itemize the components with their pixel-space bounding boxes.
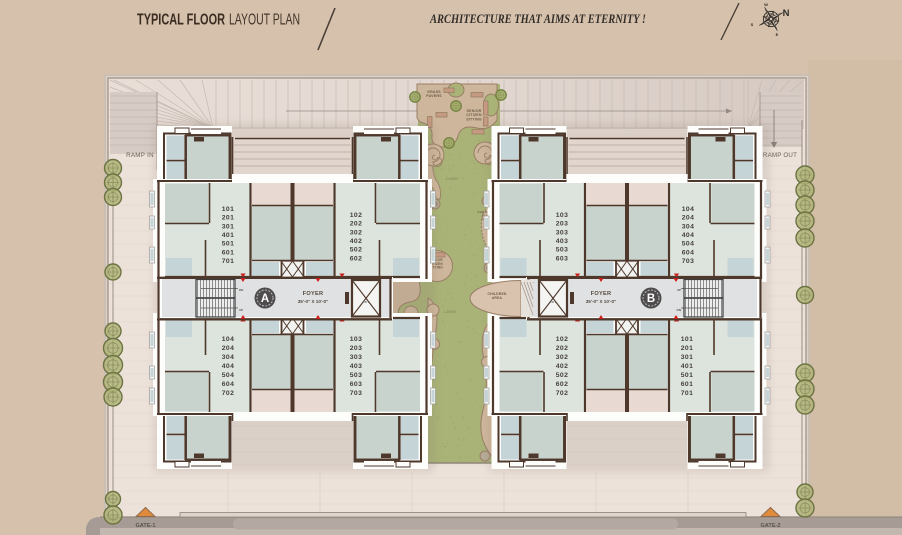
svg-text:PAVERS: PAVERS [426, 94, 442, 98]
svg-text:603: 603 [556, 255, 569, 262]
svg-text:104: 104 [222, 336, 235, 343]
svg-text:FOYER: FOYER [591, 291, 612, 297]
svg-text:SITTING: SITTING [466, 117, 482, 121]
svg-text:W: W [764, 2, 768, 7]
svg-text:35'-0" X 10'-0": 35'-0" X 10'-0" [298, 299, 329, 304]
svg-text:401: 401 [222, 232, 235, 239]
svg-text:403: 403 [350, 363, 363, 370]
svg-text:GATE-1: GATE-1 [135, 523, 155, 529]
svg-text:203: 203 [350, 345, 363, 352]
svg-text:402: 402 [556, 363, 569, 370]
svg-text:302: 302 [556, 354, 569, 361]
svg-text:504: 504 [682, 241, 695, 248]
svg-text:202: 202 [350, 221, 363, 228]
svg-text:DN: DN [677, 308, 681, 312]
svg-text:ARCHITECTURE THAT AIMS AT ETER: ARCHITECTURE THAT AIMS AT ETERNITY ! [429, 12, 646, 26]
svg-text:102: 102 [556, 336, 569, 343]
svg-text:303: 303 [350, 354, 363, 361]
svg-text:402: 402 [350, 238, 363, 245]
svg-text:404: 404 [222, 363, 235, 370]
svg-text:RAMP IN: RAMP IN [126, 152, 154, 159]
svg-text:304: 304 [682, 223, 695, 230]
svg-text:N: N [783, 8, 790, 19]
svg-text:502: 502 [556, 372, 569, 379]
svg-text:702: 702 [556, 390, 569, 397]
svg-text:401: 401 [681, 363, 694, 370]
svg-text:E: E [776, 32, 779, 37]
svg-text:204: 204 [682, 215, 695, 222]
svg-text:102: 102 [350, 212, 363, 219]
svg-text:202: 202 [556, 345, 569, 352]
svg-text:103: 103 [556, 212, 569, 219]
svg-text:602: 602 [556, 381, 569, 388]
svg-text:203: 203 [556, 221, 569, 228]
svg-text:404: 404 [682, 232, 695, 239]
svg-text:701: 701 [222, 258, 235, 265]
svg-text:501: 501 [681, 372, 694, 379]
svg-text:201: 201 [222, 215, 235, 222]
svg-text:35'-0" X 10'-0": 35'-0" X 10'-0" [586, 299, 617, 304]
svg-text:403: 403 [556, 238, 569, 245]
svg-text:AREA: AREA [492, 296, 503, 300]
svg-text:702: 702 [222, 390, 235, 397]
svg-text:LAWN: LAWN [444, 310, 457, 314]
svg-text:S: S [751, 22, 754, 27]
svg-text:703: 703 [682, 258, 695, 265]
svg-text:101: 101 [681, 336, 694, 343]
svg-text:601: 601 [681, 381, 694, 388]
svg-text:503: 503 [556, 247, 569, 254]
svg-text:LIFT: LIFT [363, 300, 369, 304]
svg-text:UP: UP [239, 308, 243, 312]
svg-text:604: 604 [222, 381, 235, 388]
svg-text:DN: DN [239, 288, 243, 292]
svg-text:603: 603 [350, 381, 363, 388]
svg-text:LAYOUT PLAN: LAYOUT PLAN [229, 12, 300, 29]
svg-text:B: B [647, 293, 655, 305]
svg-text:201: 201 [681, 345, 694, 352]
svg-text:TYPICAL FLOOR: TYPICAL FLOOR [137, 12, 225, 29]
svg-text:301: 301 [222, 223, 235, 230]
svg-text:103: 103 [350, 336, 363, 343]
svg-text:601: 601 [222, 249, 235, 256]
svg-text:302: 302 [350, 229, 363, 236]
svg-text:301: 301 [681, 354, 694, 361]
svg-text:703: 703 [350, 390, 363, 397]
svg-text:FOYER: FOYER [303, 291, 324, 297]
svg-text:501: 501 [222, 241, 235, 248]
svg-text:LAWN: LAWN [446, 177, 459, 181]
svg-text:502: 502 [350, 247, 363, 254]
svg-text:UP: UP [677, 288, 681, 292]
svg-text:602: 602 [350, 255, 363, 262]
svg-text:A: A [261, 293, 269, 305]
svg-text:204: 204 [222, 345, 235, 352]
svg-text:604: 604 [682, 249, 695, 256]
svg-text:GATE-2: GATE-2 [760, 523, 780, 529]
svg-text:304: 304 [222, 354, 235, 361]
svg-text:503: 503 [350, 372, 363, 379]
svg-text:101: 101 [222, 206, 235, 213]
svg-text:701: 701 [681, 390, 694, 397]
svg-text:504: 504 [222, 372, 235, 379]
svg-text:303: 303 [556, 229, 569, 236]
svg-text:LIFT: LIFT [550, 300, 556, 304]
svg-text:104: 104 [682, 206, 695, 213]
